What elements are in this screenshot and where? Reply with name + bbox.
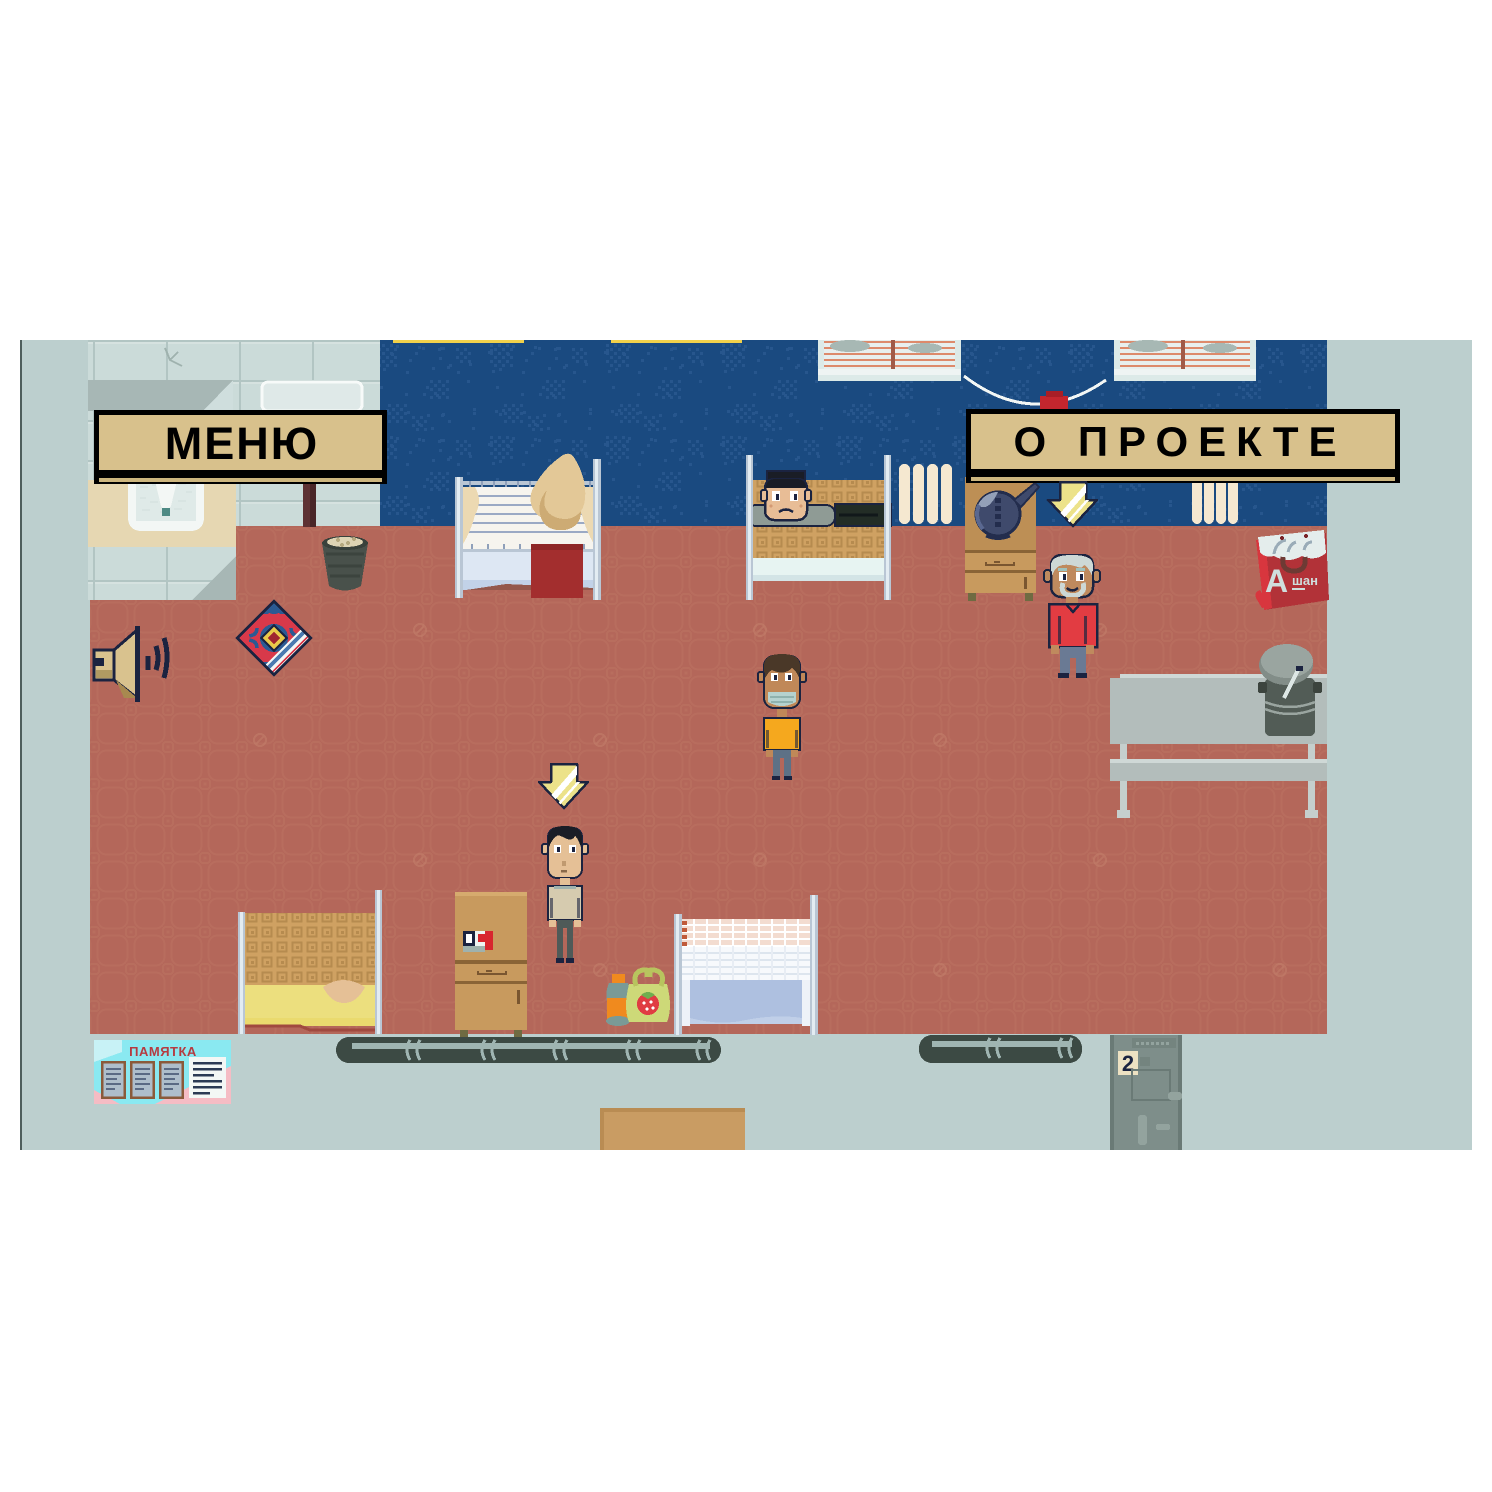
svg-text:ПАМЯТКА: ПАМЯТКА <box>129 1044 197 1059</box>
svg-text:шан: шан <box>1292 573 1318 588</box>
svg-text:О ПРОЕКТЕ: О ПРОЕКТЕ <box>1013 418 1346 465</box>
svg-text:A: A <box>1265 563 1288 599</box>
svg-text:МЕНЮ: МЕНЮ <box>165 418 319 469</box>
